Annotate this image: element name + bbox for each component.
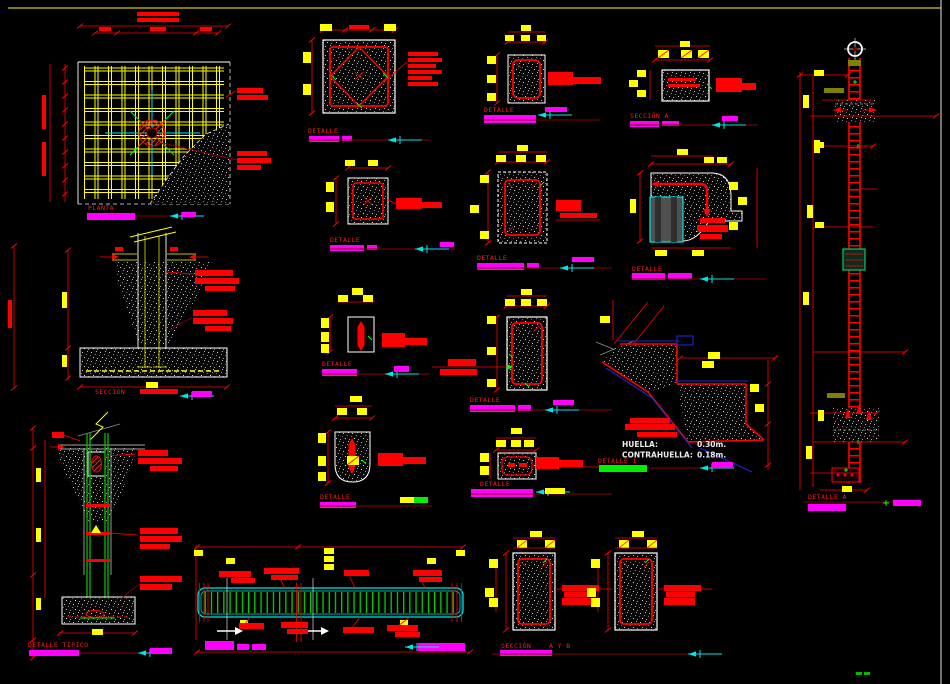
- cad-canvas[interactable]: PLANTA SECCION: [0, 0, 950, 684]
- detail-col-section-square: DETALLE: [303, 24, 442, 144]
- hatched-tag: [658, 50, 709, 58]
- section-a-title: SECCIÓN A: [630, 111, 669, 120]
- huella-label: HUELLA:: [622, 440, 658, 449]
- annotation-block: [432, 359, 513, 375]
- hatched-tag: [347, 456, 359, 465]
- detail-section-ab: SECCIÓN A Y B: [485, 531, 722, 658]
- section-cut-arrow: [217, 627, 329, 635]
- beam-title-block: [205, 641, 234, 650]
- plan-title: PLANTA: [88, 204, 114, 212]
- scale-bar-green: [414, 497, 428, 503]
- detail-beam-section-a: SECCIÓN A: [629, 41, 758, 129]
- scale-bar: [470, 405, 515, 412]
- column-below: [650, 197, 683, 242]
- annotation-block: [697, 218, 728, 239]
- detail-title: DETALLE: [480, 480, 510, 488]
- annotation-block: [716, 78, 756, 92]
- detail-corner: DETALLE: [630, 149, 765, 283]
- scale-bar: [320, 502, 356, 508]
- huella-value: 0.30m.: [697, 440, 726, 449]
- hatched-tag: [619, 540, 657, 548]
- leader-arrow: [688, 650, 722, 658]
- scale-bar: [808, 504, 846, 511]
- footing-section-title: SECCION: [95, 388, 125, 396]
- scale-bar: [87, 213, 135, 220]
- detail-pile: DETALLE TIPICO: [28, 412, 182, 661]
- scale-bar: [471, 489, 533, 497]
- detail-bar: DETALLE: [321, 288, 430, 378]
- leader-arrow: [545, 406, 579, 414]
- column-stirrups: [145, 238, 159, 348]
- scale-bar-green: [599, 465, 647, 472]
- detail-column-elevation: DETALLE A: [797, 38, 939, 511]
- footing-concrete: [80, 348, 227, 377]
- layout-mark: [856, 672, 862, 675]
- beam-stirrups: [204, 592, 458, 613]
- step-outline: [677, 336, 693, 345]
- detail-beam-elevation: [194, 545, 473, 655]
- detail-title: DETALLE: [330, 236, 360, 244]
- annotation-block: [625, 418, 677, 437]
- detail-title: DETALLE: [632, 265, 662, 273]
- axis-target-icon: [844, 38, 866, 60]
- leader-arrow: [538, 111, 572, 119]
- detail-title: DETALLE: [308, 127, 338, 135]
- annotation-block: [548, 72, 601, 85]
- scale-bar-yellow: [400, 497, 414, 503]
- leader-arrow: [712, 121, 746, 129]
- scale-bar: [309, 136, 339, 142]
- scale-bar: [484, 115, 536, 123]
- detail-col-section-small: DETALLE: [484, 25, 601, 123]
- scale-bar: [330, 245, 364, 251]
- hatched-tag: [517, 540, 555, 548]
- stair-title: DETALLE 1: [598, 457, 637, 465]
- scale-bar: [500, 650, 552, 656]
- detail-title: DETALLE: [484, 106, 514, 114]
- scale-bar: [477, 263, 524, 270]
- annotation-block: [555, 585, 612, 605]
- detail-plate: DETALLE: [471, 428, 612, 497]
- annotation-block: [556, 200, 600, 220]
- leader-arrow: [700, 275, 734, 283]
- stair-concrete: [677, 384, 764, 442]
- annotation-block: [657, 585, 712, 605]
- concrete-section: [615, 553, 657, 630]
- detail-title: DETALLE: [322, 360, 352, 368]
- annotation-block: [378, 453, 426, 466]
- beam-crossing-box: [843, 249, 865, 270]
- stair-concrete: [602, 344, 677, 392]
- annotation-block: [388, 198, 442, 209]
- annotation-block: [382, 333, 427, 347]
- section-ab-subtitle: A Y B: [549, 642, 571, 650]
- scale-bar: [192, 391, 212, 397]
- detail-foundation-plan: PLANTA: [42, 12, 271, 220]
- detail-title: DETALLE: [470, 396, 500, 404]
- detail-u-shape: DETALLE: [318, 396, 432, 508]
- detail-stair: HUELLA: 0.30m. CONTRAHUELLA: 0.18m. DETA…: [596, 300, 778, 472]
- concrete-section: [507, 317, 547, 390]
- detail-col-section-h: DETALLE: [432, 289, 612, 414]
- detail-title: DETALLE: [320, 493, 350, 501]
- detail-col-section-e: DETALLE: [470, 145, 612, 272]
- detail-footing-section: SECCION: [8, 227, 239, 400]
- scale-bar: [630, 121, 659, 127]
- pile-title: DETALLE TIPICO: [28, 641, 88, 649]
- rebar-cut: [358, 321, 365, 351]
- section-ab-title: SECCIÓN: [501, 641, 531, 650]
- scale-bar: [29, 650, 79, 656]
- detail-title: DETALLE: [477, 254, 507, 262]
- layout-mark: [864, 672, 870, 675]
- leader-arrow: [560, 264, 594, 272]
- annotation-block: [226, 88, 271, 170]
- column-elevation-title: DETALLE A: [808, 493, 847, 501]
- contrahuella-value: 0.18m.: [697, 451, 726, 460]
- detail-col-section-d: DETALLE: [326, 160, 455, 253]
- leader-arrow: [388, 136, 422, 144]
- scale-bar: [322, 369, 357, 376]
- concrete-section: [513, 553, 555, 630]
